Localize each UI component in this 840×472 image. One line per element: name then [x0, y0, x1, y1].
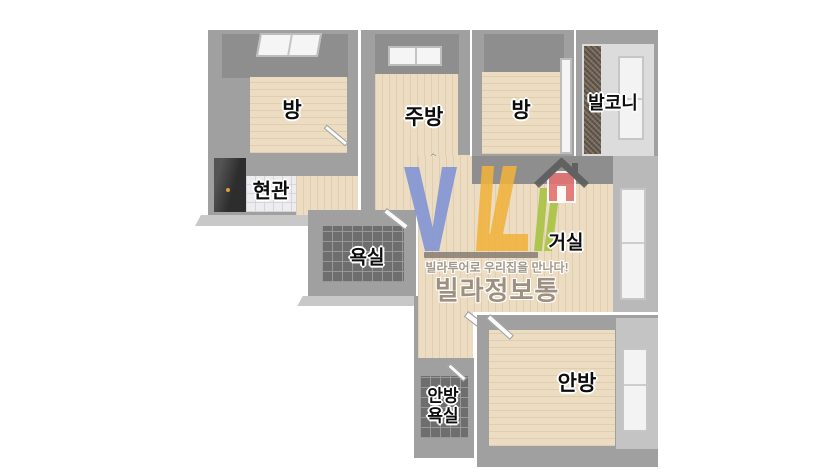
panel-split [622, 242, 644, 244]
room2-ceiling-shade [484, 34, 564, 74]
logo-stroke-yellow-base [486, 234, 528, 251]
window-divider [287, 35, 293, 55]
panel-split [624, 384, 646, 386]
logo-stroke-yellow-2 [490, 166, 517, 234]
room1-label: 방 [282, 94, 301, 124]
front-door-handle [226, 188, 230, 192]
master-bathroom-label-line2: 욕실 [427, 406, 458, 425]
living-tail-bottom-wall [414, 358, 474, 366]
window-divider [415, 48, 417, 64]
room2-balcony-window [560, 58, 572, 154]
room2-label: 방 [511, 94, 530, 124]
living-door-panel [620, 188, 646, 300]
logo-underline-bar [424, 252, 538, 258]
entrance-label: 현관 [253, 175, 290, 204]
room1-window [256, 33, 322, 57]
kitchen-label: 주방 [405, 101, 444, 131]
front-door [214, 158, 246, 212]
balcony-label: 발코니 [588, 89, 638, 115]
bathroom-label: 욕실 [350, 243, 385, 270]
master-window-panel [622, 348, 648, 432]
master-bathroom-label-line1: 안방 [427, 386, 458, 405]
master-bathroom-label: 안방욕실 [421, 386, 465, 425]
kitchen-window [388, 46, 442, 66]
logo-stroke-blue-right [429, 167, 457, 251]
living-label: 거실 [549, 228, 584, 255]
master-bedroom-label: 안방 [558, 367, 597, 397]
floorplan-canvas: 방 주방 방 발코니 현관 욕실 거실 안방 안방욕실 빌라투어로 우리집을 만… [0, 0, 840, 472]
brand-name: 빌라정보통 [435, 271, 560, 308]
outer-wall-edge [297, 296, 418, 306]
living-floor-tail [418, 312, 473, 358]
